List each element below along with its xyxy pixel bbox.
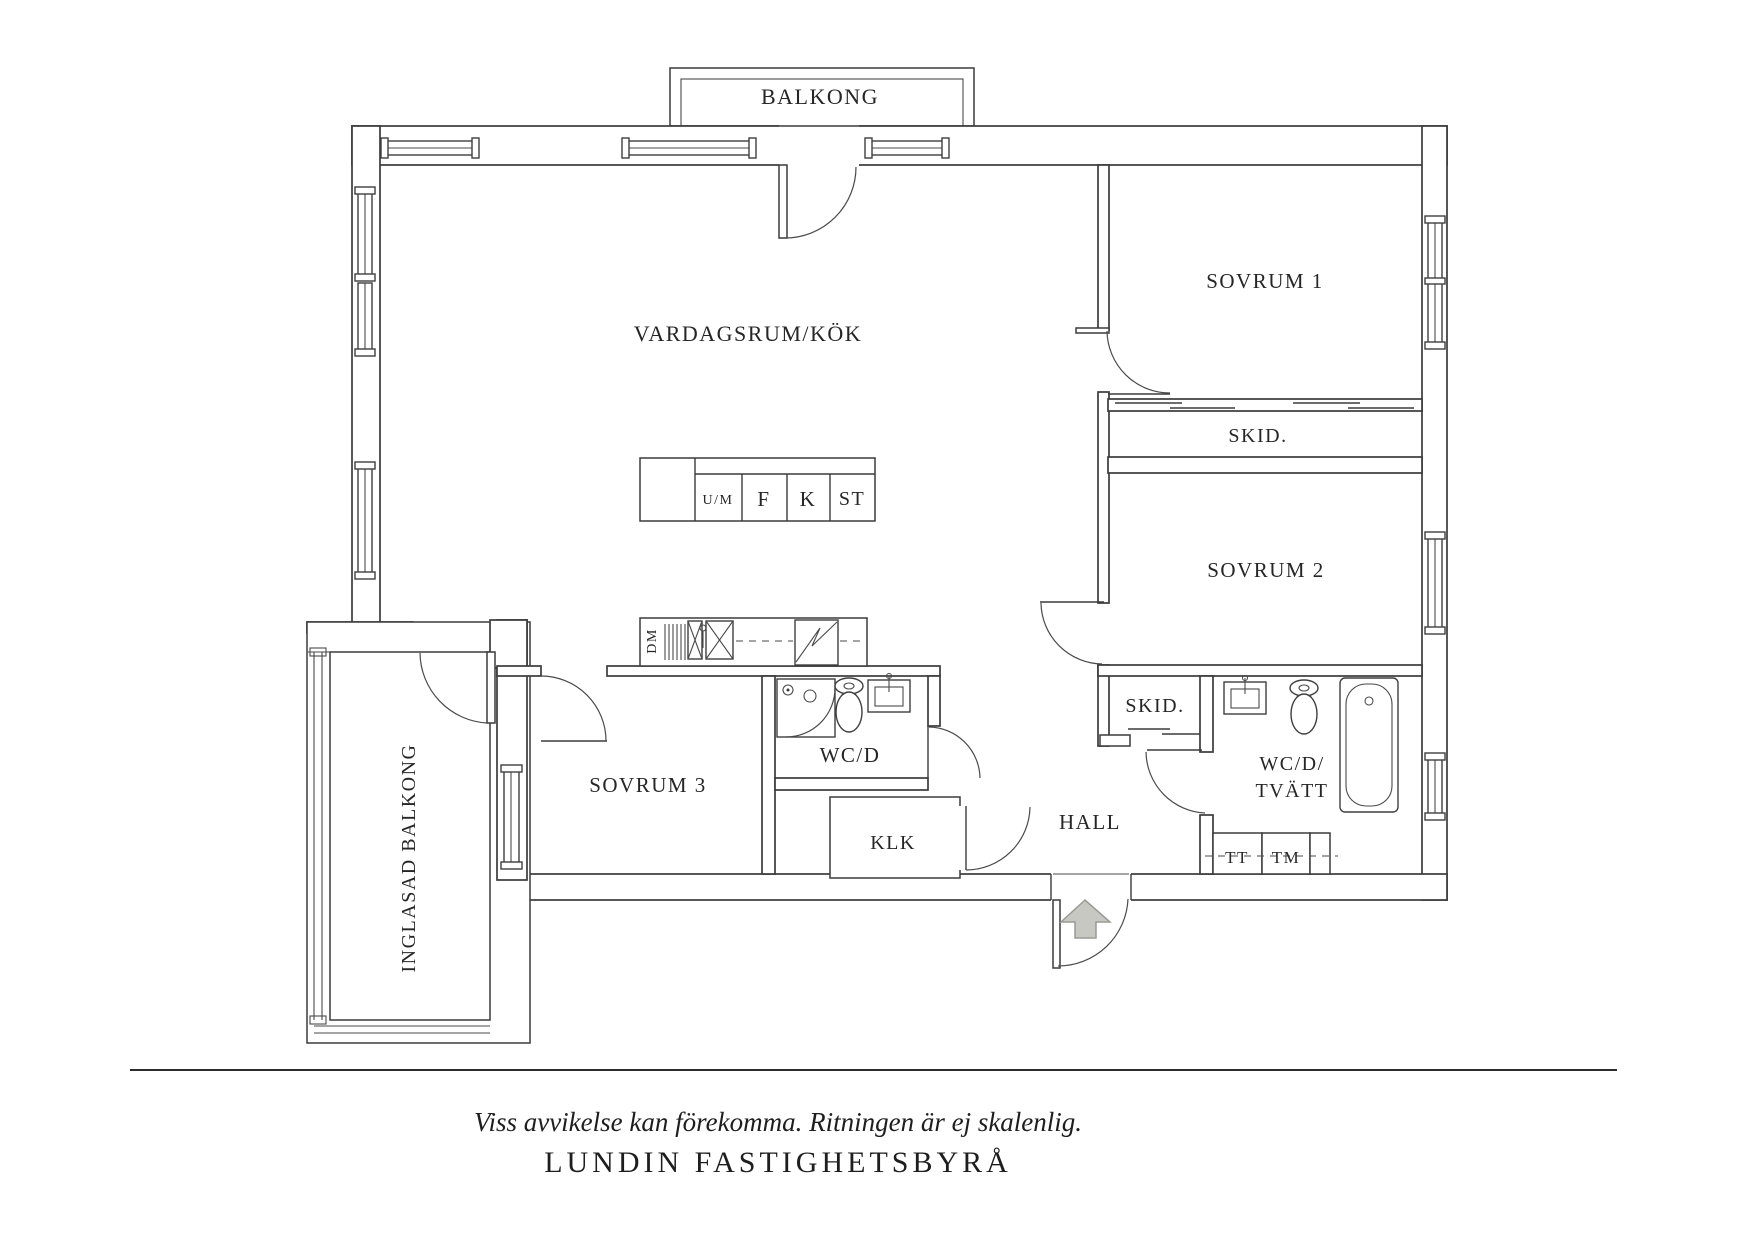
wcd-fixtures <box>777 674 910 738</box>
door-sovrum3 <box>541 676 607 741</box>
kitchen-island: U/M F K ST <box>640 458 875 521</box>
label-wcd-tvatt-2: TVÄTT <box>1255 779 1328 802</box>
window-sovrum3-west <box>501 765 522 869</box>
footer-disclaimer: Viss avvikelse kan förekomma. Ritningen … <box>474 1107 1082 1137</box>
door-wcd <box>928 726 980 778</box>
floorplan-page: U/M F K ST DM <box>0 0 1754 1240</box>
window-right-sovrum2 <box>1425 532 1445 634</box>
window-left-3 <box>355 462 375 579</box>
island-cell-k: K <box>800 487 817 511</box>
label-hall: HALL <box>1059 810 1121 834</box>
label-skid-lower: SKID. <box>1125 695 1184 717</box>
label-skid-upper: SKID. <box>1228 425 1287 447</box>
shower-icon <box>777 679 835 737</box>
label-klk: KLK <box>870 832 916 854</box>
window-right-sovrum1 <box>1425 216 1445 349</box>
door-sovrum2 <box>1040 602 1104 664</box>
counter-dm-label: DM <box>645 628 660 654</box>
laundry-cabinets: TT TM <box>1205 833 1338 874</box>
sliding-door-skid-lower <box>1100 729 1200 746</box>
sink2-icon <box>1224 676 1266 715</box>
doors <box>420 124 1205 968</box>
window-top-1 <box>381 138 479 158</box>
label-sovrum2: SOVRUM 2 <box>1207 558 1325 582</box>
sink-basin2-icon <box>706 621 733 659</box>
stove-icon <box>795 620 838 665</box>
window-right-bath <box>1425 753 1445 820</box>
door-wcd-tvatt <box>1146 750 1205 813</box>
window-left-2 <box>355 283 375 356</box>
label-balkong: BALKONG <box>761 84 879 109</box>
kitchen-counter: DM <box>640 618 867 666</box>
cabinet-tt-label: TT <box>1225 848 1249 867</box>
bathtub-icon <box>1340 678 1398 812</box>
door-klk <box>966 806 1030 870</box>
toilet-icon <box>835 678 863 732</box>
label-vardagsrum: VARDAGSRUM/KÖK <box>634 321 862 346</box>
window-top-3 <box>865 138 949 158</box>
label-wcd: WC/D <box>820 743 881 767</box>
island-cell-um: U/M <box>703 493 734 508</box>
footer-brand: LUNDIN FASTIGHETSBYRÅ <box>544 1146 1012 1179</box>
toilet2-icon <box>1290 680 1318 734</box>
cabinet-tm-label: TM <box>1272 848 1301 867</box>
label-sovrum3: SOVRUM 3 <box>589 773 707 797</box>
door-balkong <box>779 124 859 238</box>
floorplan-drawing: U/M F K ST DM <box>0 0 1754 1240</box>
door-sovrum1 <box>1107 331 1170 394</box>
entrance-arrow-icon <box>1061 900 1110 938</box>
label-sovrum1: SOVRUM 1 <box>1206 269 1324 293</box>
island-cell-f: F <box>757 487 770 511</box>
label-inglasad-balkong: INGLASAD BALKONG <box>398 744 420 973</box>
island-cell-st: ST <box>839 488 865 510</box>
label-wcd-tvatt-1: WC/D/ <box>1259 753 1324 775</box>
window-left-1 <box>355 187 375 281</box>
window-top-2 <box>622 138 756 158</box>
footer: Viss avvikelse kan förekomma. Ritningen … <box>130 1070 1617 1179</box>
sink-icon <box>868 674 910 713</box>
